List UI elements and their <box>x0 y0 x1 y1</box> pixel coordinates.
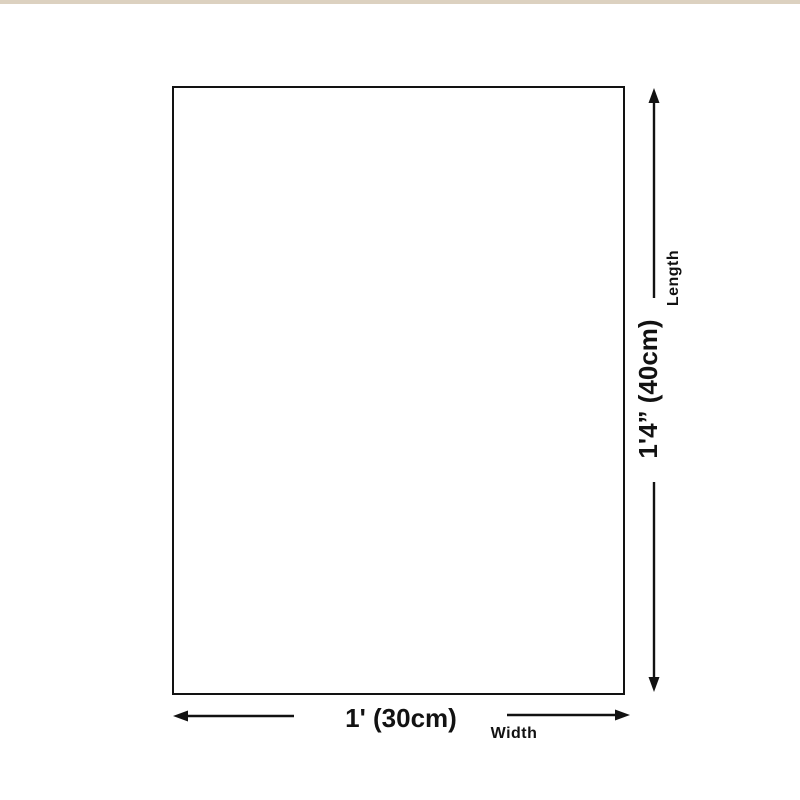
length-value: 1'4” (40cm) <box>635 319 661 458</box>
product-canvas <box>172 86 625 695</box>
width-label: Width <box>491 726 538 742</box>
dimension-diagram: 1'4” (40cm) Length 1' (30cm) Width <box>0 0 800 800</box>
length-arrow-down-icon <box>646 482 662 692</box>
width-arrow-right-icon <box>507 707 630 723</box>
width-value: 1' (30cm) <box>345 705 457 731</box>
length-arrow-up-icon <box>646 88 662 298</box>
top-accent-bar <box>0 0 800 4</box>
width-arrow-left-icon <box>173 708 294 724</box>
length-label: Length <box>666 250 682 306</box>
